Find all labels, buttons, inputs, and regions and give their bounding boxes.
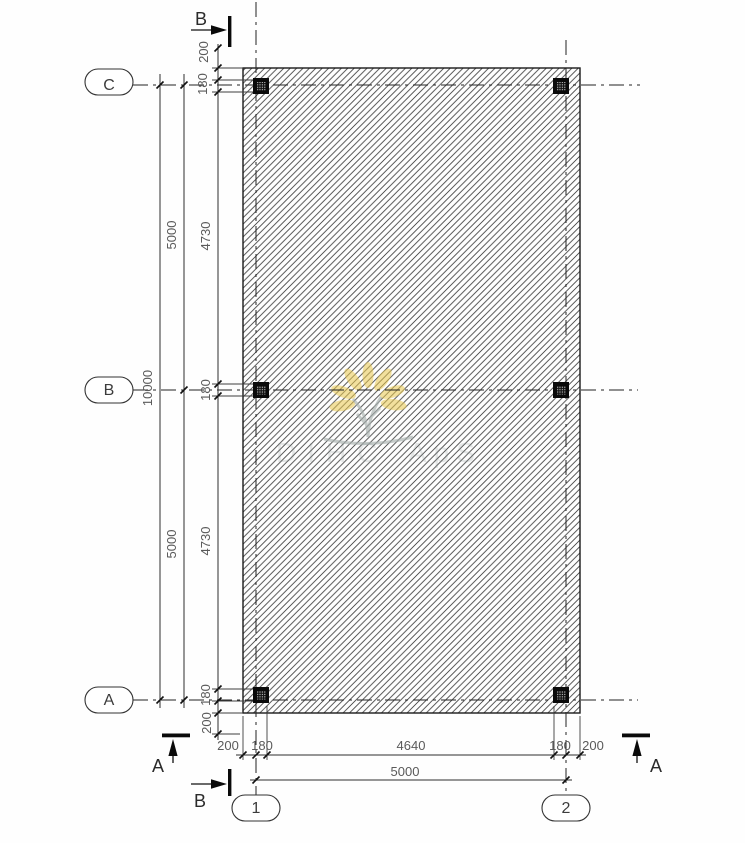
column-A2 — [553, 687, 569, 703]
dim-label-200-right: 200 — [582, 738, 604, 753]
section-B-bottom-label: B — [194, 791, 206, 811]
dim-label-4730-lower: 4730 — [198, 527, 213, 556]
dim-label-180-left: 180 — [251, 738, 273, 753]
section-B-bottom-arrow-icon — [211, 779, 227, 789]
dim-label-10000: 10000 — [140, 370, 155, 406]
grid-bubble-B: B — [85, 377, 133, 403]
grid-bubble-C-label: C — [103, 77, 115, 94]
dim-label-5000-overall: 5000 — [391, 764, 420, 779]
dim-label-5000-lower: 5000 — [164, 530, 179, 559]
watermark-text-right: ApS — [408, 437, 482, 468]
section-A-right-arrow-icon — [632, 739, 641, 756]
dim-label-4730-upper: 4730 — [198, 222, 213, 251]
grid-bubble-C: C — [85, 69, 133, 95]
section-A-right-label: A — [650, 756, 662, 776]
grid-bubble-1: 1 — [232, 795, 280, 821]
section-marker-A-left: A — [152, 734, 190, 777]
column-C2 — [553, 78, 569, 94]
vertical-dimension-labels: 200 180 4730 180 4730 180 200 5000 5000 … — [140, 41, 214, 734]
dim-label-200-top: 200 — [196, 41, 211, 63]
section-B-top-arrow-icon — [211, 25, 227, 35]
horizontal-dimension-labels: 200 180 4640 180 200 5000 — [217, 738, 604, 779]
watermark-text-left: DIHC — [276, 437, 388, 468]
dim-label-180-b: 180 — [198, 379, 213, 401]
section-marker-B-bottom: B — [191, 769, 231, 811]
dim-label-180-a: 180 — [198, 684, 213, 706]
column-C1 — [253, 78, 269, 94]
dim-label-180-right: 180 — [549, 738, 571, 753]
dim-label-200-left: 200 — [217, 738, 239, 753]
grid-bubble-2: 2 — [542, 795, 590, 821]
section-marker-A-right: A — [622, 734, 662, 777]
column-A1 — [253, 687, 269, 703]
grid-bubble-1-label: 1 — [252, 800, 261, 817]
column-B1 — [253, 382, 269, 398]
section-B-top-label: B — [195, 9, 207, 29]
section-A-left-label: A — [152, 756, 164, 776]
grid-bubble-2-label: 2 — [562, 800, 571, 817]
plan-drawing: DIHC ApS — [0, 0, 745, 843]
dim-label-5000-upper: 5000 — [164, 221, 179, 250]
grid-bubble-B-label: B — [104, 382, 115, 399]
grid-bubble-A: A — [85, 687, 133, 713]
grid-bubble-A-label: A — [104, 692, 115, 709]
column-B2 — [553, 382, 569, 398]
section-A-left-arrow-icon — [168, 739, 177, 756]
dim-label-180-c: 180 — [195, 73, 210, 95]
dim-label-200-bottom: 200 — [199, 712, 214, 734]
drawing-canvas: DIHC ApS — [0, 0, 745, 843]
dim-label-4640: 4640 — [397, 738, 426, 753]
